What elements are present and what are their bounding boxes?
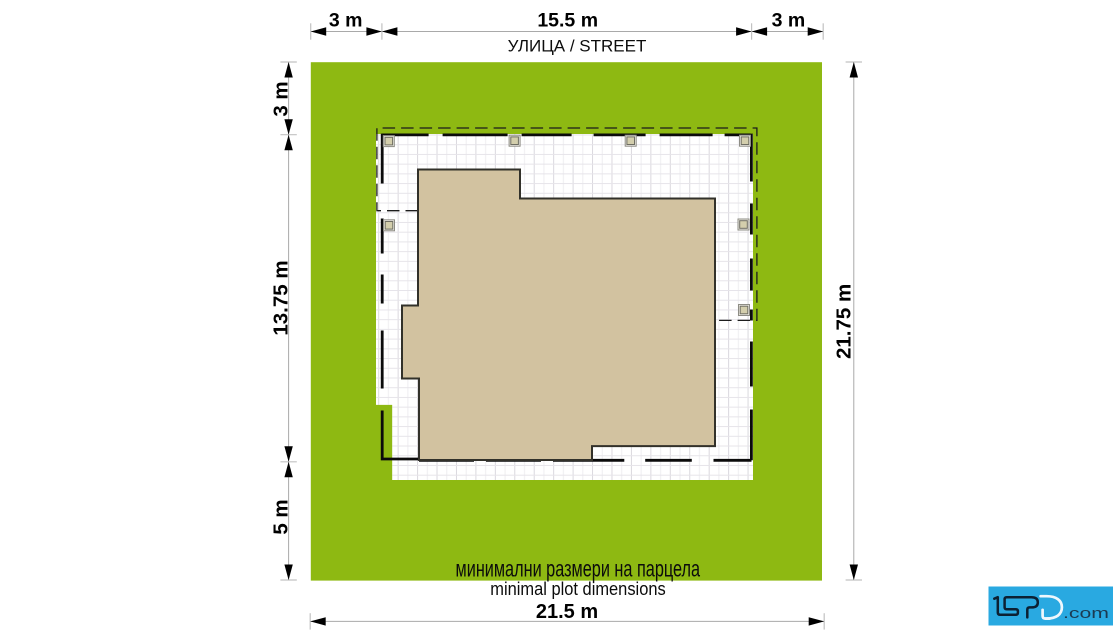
svg-text:21.5 m: 21.5 m	[536, 601, 598, 623]
svg-text:3 m: 3 m	[329, 10, 363, 32]
svg-text:13.75 m: 13.75 m	[270, 260, 293, 335]
svg-text:3 m: 3 m	[270, 81, 293, 116]
svg-text:15.5 m: 15.5 m	[537, 10, 598, 32]
svg-text:21.75 m: 21.75 m	[833, 284, 856, 359]
svg-text:.com: .com	[1063, 605, 1109, 622]
svg-text:minimal plot dimensions: minimal plot dimensions	[490, 578, 665, 599]
svg-text:УЛИЦА / STREET: УЛИЦА / STREET	[508, 37, 647, 56]
svg-text:5 m: 5 m	[270, 499, 293, 534]
svg-text:3 m: 3 m	[772, 10, 806, 32]
